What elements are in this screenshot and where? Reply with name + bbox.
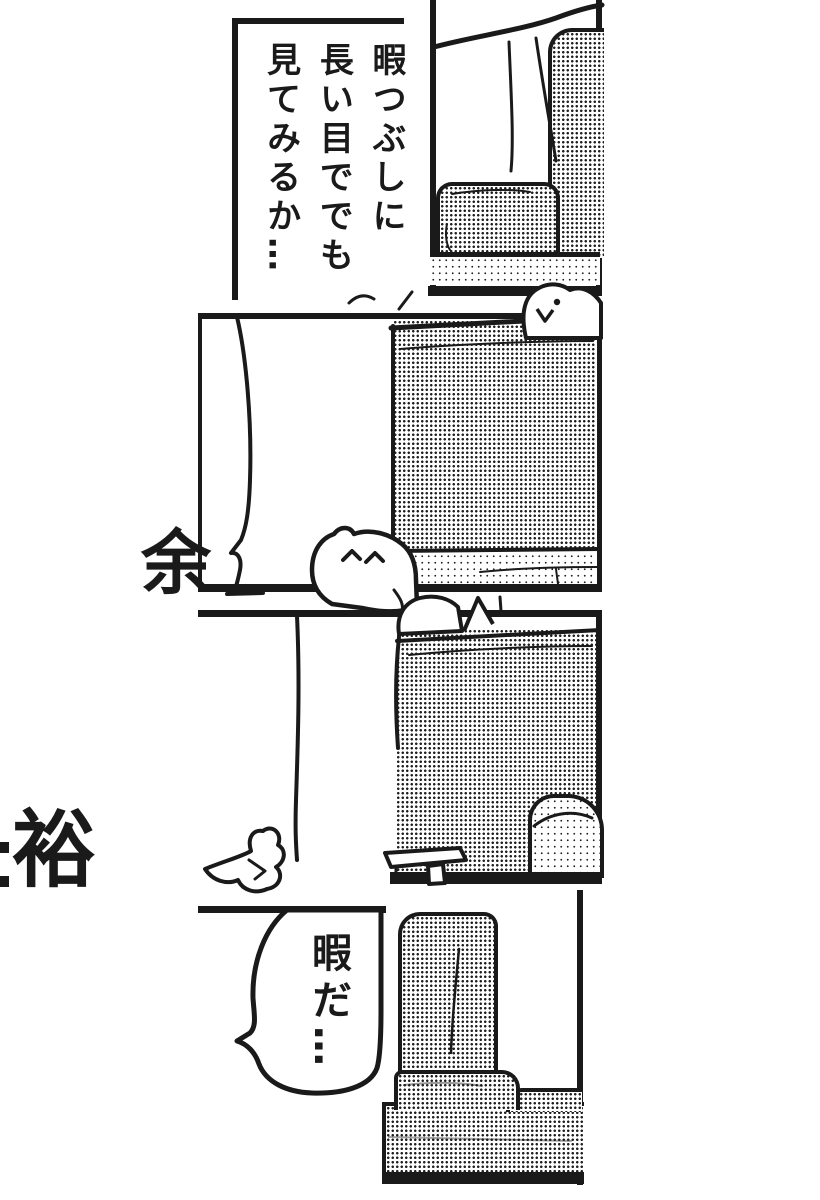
cat-peek-fang	[537, 309, 553, 321]
side-table-top	[385, 848, 466, 867]
panel-3-armrest-curve	[534, 813, 592, 826]
cat-face-eye-right	[366, 553, 383, 562]
panel-3-sofa-seam	[409, 646, 592, 655]
panel-3-sofa-left-edge	[396, 637, 399, 748]
dialogue-column-2: 長い目ででも	[307, 42, 360, 300]
panel-3-border-bottom	[390, 872, 602, 884]
panel-4-base-seam	[389, 1137, 571, 1141]
panel-2-sofa-seam	[400, 341, 593, 349]
panel-1-sofa-base-line	[430, 252, 600, 257]
cat-face-cheek	[394, 590, 403, 612]
panel-2-floor	[393, 553, 596, 584]
dialogue-column-3: 見てみるか…	[254, 42, 307, 300]
manga-page: 暇つぶしに 長い目ででも 見てみるか… 暇だ… 余 裕	[0, 0, 820, 1200]
panel-1-sofa-back	[548, 28, 604, 258]
panel-2-border-top	[198, 313, 602, 319]
panel-4-sofa-base	[382, 1102, 584, 1184]
panel-2-border-bottom	[198, 584, 602, 592]
margin-kanji-lower: 裕	[12, 808, 96, 892]
panel-4-border-top	[198, 906, 386, 913]
panel-3-armrest	[528, 794, 604, 878]
panel-1-seat-crease	[446, 224, 450, 250]
panel-3-sofa-top-edge	[397, 630, 600, 641]
dialogue-column-1: 暇だ…	[302, 932, 354, 1087]
panel-2-floor-joint	[556, 569, 558, 584]
panel-1-seat-seam	[452, 190, 530, 194]
side-table-leg	[428, 864, 445, 884]
panel-3-bubble-edge	[296, 616, 299, 860]
cat-peek-head	[524, 284, 601, 338]
panel-4-seat-crease	[404, 1083, 482, 1086]
panel-4-backrest-crease	[451, 949, 459, 1053]
cat-ear-blob	[205, 829, 284, 892]
panel-2-bubble-foot	[227, 593, 263, 594]
curtain-fold-2	[536, 38, 556, 161]
panel-1-textbox-border-left	[232, 18, 238, 300]
panel-4-dialogue: 暇だ…	[294, 932, 354, 1087]
panel-1-border-right	[596, 0, 602, 296]
panel-1-sofa-seat	[436, 182, 560, 258]
panel-3-sofa-back	[396, 629, 596, 874]
panel-1-border-bottom	[428, 286, 602, 296]
panel-4-right-cushion	[506, 1088, 582, 1112]
clipped-kanji-stroke-2	[0, 876, 9, 887]
panel-3-border-right	[596, 610, 602, 884]
margin-kanji-upper: 余	[141, 528, 211, 598]
dialogue-column-1: 暇つぶしに	[359, 42, 412, 300]
curtain-fold-1	[509, 42, 512, 171]
panel-4-border-right	[577, 890, 583, 1185]
panel-1-border-left	[430, 0, 436, 296]
curtain-rod-arc	[434, 5, 602, 47]
panel-3-border-top	[198, 610, 602, 617]
cat-face	[312, 528, 417, 612]
panel-3-cat-head	[398, 597, 462, 634]
panel-4-sofa-backrest	[398, 912, 498, 1080]
panel-2-sofa-back	[393, 320, 596, 551]
clipped-kanji-stroke-1	[0, 842, 9, 853]
panel-2-border-right	[597, 313, 602, 592]
panel-1-floor	[430, 257, 600, 285]
panel-2-floor-seam	[480, 567, 598, 572]
panel-2-sofa-bottom-edge	[392, 549, 600, 551]
panel-1-textbox-border-top	[232, 18, 404, 24]
cat-peek-eye	[554, 299, 560, 305]
panel-4-sofa-seat	[394, 1070, 520, 1110]
cat-ear-notch	[249, 860, 265, 879]
panel-3-cat-ear	[464, 598, 493, 631]
panel-1-dialogue: 暇つぶしに 長い目ででも 見てみるか…	[248, 42, 412, 300]
panel-2-sofa-top-edge	[391, 317, 600, 328]
cat-face-eye-left	[343, 551, 360, 560]
panel-2-bubble-edge	[231, 317, 250, 593]
panel-3-head-tick	[500, 597, 501, 611]
